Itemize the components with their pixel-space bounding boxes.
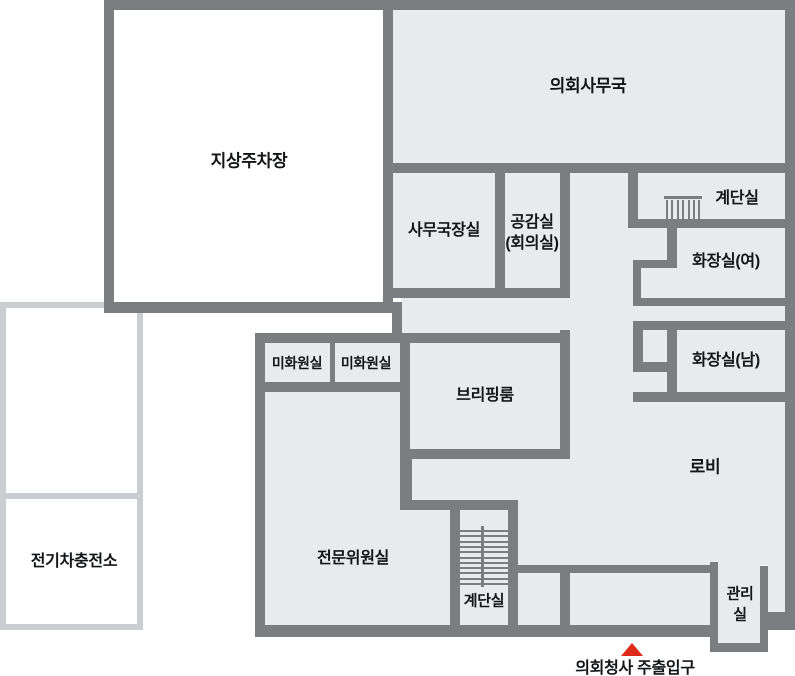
wall-segment-17 [495,173,505,298]
room-label-management-line2: 실 [733,608,747,623]
wall-segment-7 [255,333,265,637]
wall-segment-15 [560,573,570,625]
stairs-top-step-icon [682,200,684,219]
room-stairwell-top [638,173,785,219]
floor-area-restroom-w-entry [633,228,667,260]
floor-area-open-strip-offices [402,298,633,333]
wall-segment-11 [710,562,718,652]
wall-segment-27 [633,321,795,330]
room-label-lobby: 로비 [690,459,721,476]
wall-segment-34 [400,449,570,459]
stairs-top-step-icon [688,200,690,219]
room-label-briefing-room: 브리핑룸 [456,388,514,404]
stairs-top-step-icon [671,200,673,219]
wall-segment-22 [628,219,795,228]
stairs-bottom-step-icon [460,583,508,585]
room-label-management-line1: 관리 [726,587,753,602]
stairs-bottom-step-icon [460,572,508,574]
floor-area-vestibule-west [518,573,560,625]
wall-segment-28 [633,330,643,363]
floor-area-vestibule-entrance [570,573,710,625]
wall-segment-9 [255,625,712,637]
wall-segment-3 [104,302,393,313]
stairs-bottom-step-icon [460,541,508,543]
floor-area-restroom-w-niche [641,268,677,298]
wall-segment-30 [667,330,677,392]
wall-segment-14 [508,565,710,573]
stairs-bottom-step-icon [460,546,508,548]
floor-area-lobby-band-stair [518,500,570,565]
stairs-bottom-step-icon [460,578,508,580]
room-label-stairwell-bottom: 계단실 [464,594,505,609]
room-label-ev-charging-station: 전기차충전소 [31,554,118,570]
stairs-bottom-step-icon [460,551,508,553]
wall-segment-26 [633,298,795,306]
wall-segment-1 [104,0,795,10]
wall-segment-20 [560,330,570,459]
ev-station-box-1 [0,302,143,499]
main-entrance-label: 의회청사 주출입구 [575,654,695,676]
wall-segment-32 [330,343,335,382]
room-label-gonggam-line1: 공감실 [510,215,553,231]
stairs-top-step-icon [693,200,695,219]
wall-segment-6 [785,0,795,618]
stairs-top-rail-icon [664,196,702,199]
room-label-council-secretariat: 의회사무국 [550,78,627,95]
room-label-restroom-men: 화장실(남) [692,353,760,369]
room-gonggam-meeting-room [505,173,560,290]
floor-area-lobby-strip-east [768,565,785,612]
stairs-bottom-step-icon [460,557,508,559]
room-label-stairwell-top: 계단실 [715,191,758,207]
stairs-bottom-step-icon [460,530,508,532]
room-label-secretary-general-office: 사무국장실 [408,223,480,239]
room-label-expert-committee-room: 전문위원실 [317,551,389,567]
wall-segment-4 [383,0,393,313]
stairs-bottom-step-icon [460,567,508,569]
room-label-ground-parking: 지상주차장 [211,153,288,170]
wall-segment-33 [255,382,410,392]
floor-area-restroom-m-niche [643,330,667,362]
wall-segment-38 [508,505,518,625]
wall-segment-37 [450,505,460,625]
wall-segment-31 [633,392,795,402]
floor-area-restroom-corridor [633,306,785,321]
wall-segment-16 [383,163,795,173]
wall-segment-25 [633,260,641,298]
room-label-janitor-room-1: 미화원실 [272,356,322,370]
stairs-top-step-icon [677,200,679,219]
stairs-bottom-step-icon [460,562,508,564]
room-label-gonggam-line2: (회의실) [505,236,558,252]
stairs-top-step-icon [698,200,700,219]
room-management-room [718,565,760,643]
wall-segment-2 [104,0,114,313]
wall-segment-18 [383,288,570,298]
wall-segment-13 [760,566,768,652]
wall-segment-39 [400,333,410,459]
stairs-top-step-icon [666,200,668,219]
wall-segment-23 [667,228,677,268]
stairs-bottom-step-icon [460,535,508,537]
room-label-restroom-women: 화장실(여) [692,254,760,270]
wall-segment-8 [255,333,570,343]
wall-segment-29 [633,362,670,372]
floor-plan: 지상주차장의회사무국사무국장실공감실(회의실)계단실화장실(여)화장실(남)미화… [0,0,795,676]
room-label-janitor-room-2: 미화원실 [341,356,391,370]
room-lobby [570,402,785,565]
floor-area-corridor-upper [570,173,633,402]
wall-segment-19 [560,163,570,295]
floor-area-restroom-m-entry [633,372,667,392]
